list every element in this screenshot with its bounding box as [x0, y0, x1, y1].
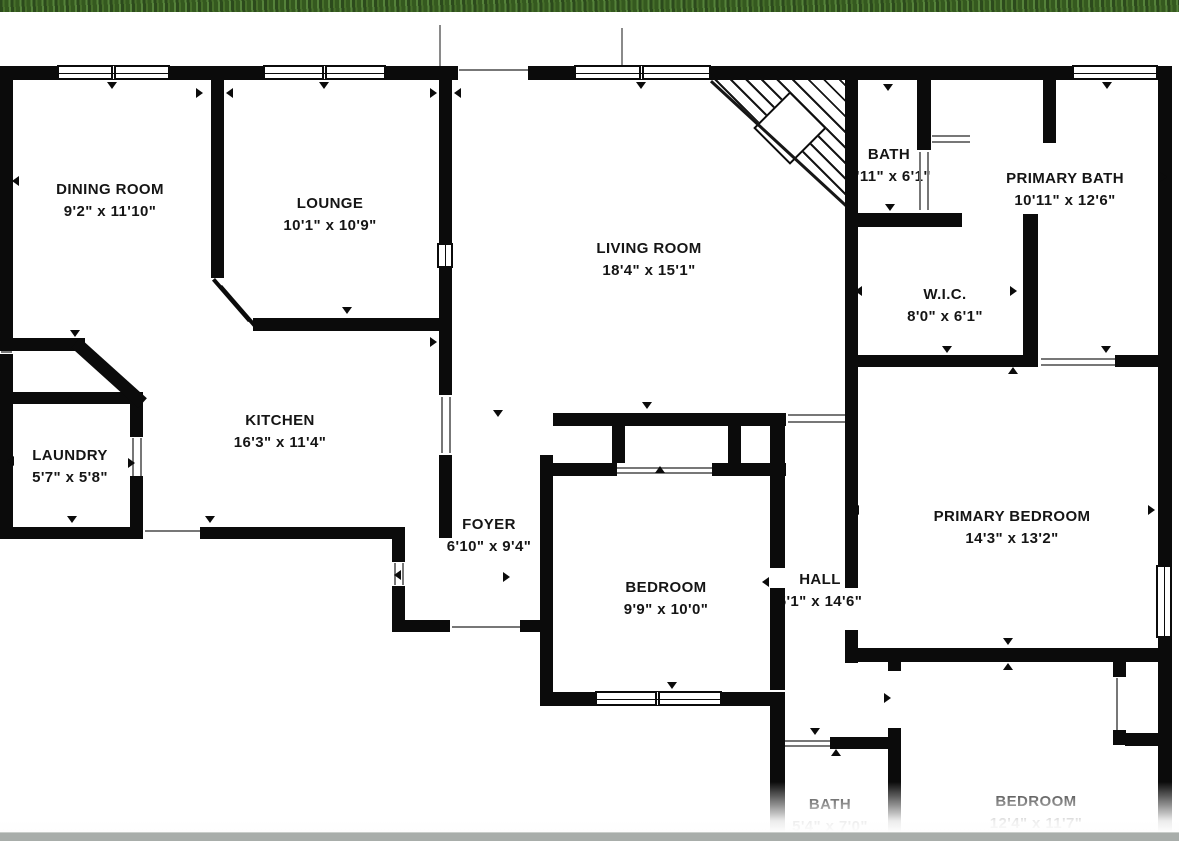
wall — [845, 648, 1172, 662]
room-dims: 5'7" x 5'8" — [32, 467, 108, 489]
room-label-primary-bedroom: PRIMARY BEDROOM 14'3" x 13'2" — [934, 506, 1091, 550]
wall — [540, 692, 595, 706]
door-opening-line — [1041, 364, 1115, 366]
wall — [0, 527, 143, 539]
grass-photo-strip — [0, 0, 1179, 12]
window-icon — [595, 691, 722, 706]
window-icon — [57, 65, 170, 80]
room-dims: 9'9" x 10'0" — [624, 599, 709, 621]
door-opening-line — [145, 530, 200, 532]
wall — [0, 66, 13, 340]
room-dims: 10'1" x 10'9" — [283, 215, 376, 237]
room-dims: 9'2" x 11'10" — [56, 201, 164, 223]
door-swing-arrow-icon — [884, 693, 891, 703]
door-opening-line — [782, 740, 830, 742]
wall — [0, 354, 13, 538]
wall — [711, 66, 1072, 80]
room-name: FOYER — [447, 514, 532, 536]
room-name: PRIMARY BEDROOM — [934, 506, 1091, 528]
door-swing-arrow-icon — [1102, 82, 1112, 89]
door-opening-line — [441, 397, 443, 453]
wall — [392, 620, 450, 632]
door-opening-line — [788, 414, 845, 416]
door-swing-arrow-icon — [885, 204, 895, 211]
room-name: LIVING ROOM — [596, 238, 701, 260]
wall — [553, 413, 786, 426]
wall — [1113, 662, 1126, 677]
door-opening-line — [132, 438, 134, 476]
wall — [770, 413, 785, 568]
room-dims: 14'3" x 13'2" — [934, 528, 1091, 550]
wall — [200, 527, 405, 539]
room-label-kitchen: KITCHEN 16'3" x 11'4" — [234, 410, 326, 454]
door-swing-arrow-icon — [883, 84, 893, 91]
door-swing-arrow-icon — [1003, 638, 1013, 645]
room-dims: 10'11" x 12'6" — [1006, 190, 1124, 212]
door-swing-arrow-icon — [942, 346, 952, 353]
door-swing-arrow-icon — [778, 693, 785, 703]
roof-guide-line — [439, 25, 441, 67]
wall — [1125, 733, 1172, 746]
room-label-primary-bath: PRIMARY BATH 10'11" x 12'6" — [1006, 168, 1124, 212]
page-bottom-fade — [0, 782, 1179, 832]
window-icon — [263, 65, 386, 80]
door-swing-arrow-icon — [319, 82, 329, 89]
door-swing-arrow-icon — [430, 337, 437, 347]
room-name: BEDROOM — [624, 577, 709, 599]
door-swing-arrow-icon — [342, 307, 352, 314]
door-opening-line — [788, 421, 845, 423]
wall — [770, 588, 785, 690]
wall — [392, 539, 405, 562]
window-icon — [1156, 565, 1172, 638]
door-swing-arrow-icon — [762, 577, 769, 587]
door-swing-arrow-icon — [1010, 286, 1017, 296]
room-name: PRIMARY BATH — [1006, 168, 1124, 190]
wall — [612, 426, 625, 463]
door-swing-arrow-icon — [493, 410, 503, 417]
wall — [1023, 214, 1038, 367]
wall — [130, 476, 143, 527]
wall — [845, 213, 962, 227]
wall — [8, 66, 57, 80]
window-icon — [574, 65, 711, 80]
wall — [1158, 66, 1172, 80]
door-opening-line — [919, 152, 921, 210]
door-opening-line — [927, 152, 929, 210]
wall — [439, 80, 452, 243]
wall — [553, 463, 617, 476]
door-opening-line — [932, 141, 970, 143]
room-label-wic: W.I.C. 8'0" x 6'1" — [907, 284, 983, 328]
door-opening-line — [1041, 358, 1115, 360]
wall — [211, 66, 224, 278]
door-swing-arrow-icon — [1101, 346, 1111, 353]
room-label-laundry: LAUNDRY 5'7" x 5'8" — [32, 445, 108, 489]
window-icon — [1072, 65, 1158, 80]
door-swing-arrow-icon — [454, 88, 461, 98]
door-opening-line — [1116, 678, 1118, 730]
door-swing-arrow-icon — [667, 682, 677, 689]
door-opening-line — [452, 626, 520, 628]
room-dims: 5'1" x 14'6" — [778, 591, 863, 613]
door-opening-line — [140, 438, 142, 476]
door-swing-arrow-icon — [70, 330, 80, 337]
room-label-living: LIVING ROOM 18'4" x 15'1" — [596, 238, 701, 282]
room-label-lounge: LOUNGE 10'1" x 10'9" — [283, 193, 376, 237]
floor-plan-canvas: DINING ROOM 9'2" x 11'10" LOUNGE 10'1" x… — [0, 0, 1179, 840]
wall — [1043, 80, 1056, 143]
door-swing-arrow-icon — [1160, 172, 1167, 182]
door-swing-arrow-icon — [205, 516, 215, 523]
door-swing-arrow-icon — [1008, 367, 1018, 374]
wall — [386, 66, 458, 80]
roof-guide-line — [621, 28, 623, 67]
door-opening-line — [1, 351, 12, 353]
door-swing-arrow-icon — [430, 88, 437, 98]
door-swing-arrow-icon — [226, 88, 233, 98]
room-name: KITCHEN — [234, 410, 326, 432]
door-swing-arrow-icon — [67, 516, 77, 523]
door-swing-arrow-icon — [831, 749, 841, 756]
room-name: DINING ROOM — [56, 179, 164, 201]
room-dims: 16'3" x 11'4" — [234, 432, 326, 454]
door-swing-arrow-icon — [394, 570, 401, 580]
wall — [528, 66, 574, 80]
door-opening-line — [402, 563, 404, 585]
wall — [888, 662, 901, 671]
room-label-bedroom: BEDROOM 9'9" x 10'0" — [624, 577, 709, 621]
door-swing-arrow-icon — [1003, 663, 1013, 670]
room-name: LAUNDRY — [32, 445, 108, 467]
room-name: LOUNGE — [283, 193, 376, 215]
door-opening-line — [459, 69, 528, 71]
door-swing-arrow-icon — [855, 286, 862, 296]
wall — [439, 455, 452, 538]
door-opening-line — [449, 397, 451, 453]
wall — [722, 692, 785, 706]
door-swing-arrow-icon — [636, 82, 646, 89]
door-swing-arrow-icon — [1148, 505, 1155, 515]
window-icon — [437, 243, 453, 268]
wall — [439, 268, 452, 395]
room-name: W.I.C. — [907, 284, 983, 306]
door-swing-arrow-icon — [128, 458, 135, 468]
wall — [845, 355, 1038, 367]
room-label-dining: DINING ROOM 9'2" x 11'10" — [56, 179, 164, 223]
door-swing-arrow-icon — [196, 88, 203, 98]
wall — [253, 318, 440, 331]
door-opening-line — [782, 745, 830, 747]
room-label-foyer: FOYER 6'10" x 9'4" — [447, 514, 532, 558]
door-swing-arrow-icon — [503, 572, 510, 582]
wall — [1158, 80, 1172, 565]
wall — [1115, 355, 1172, 367]
door-swing-arrow-icon — [7, 456, 14, 466]
room-dims: 8'0" x 6'1" — [907, 306, 983, 328]
door-swing-arrow-icon — [107, 82, 117, 89]
door-swing-arrow-icon — [65, 396, 75, 403]
door-swing-arrow-icon — [852, 505, 859, 515]
wall — [728, 426, 741, 463]
wall — [830, 737, 890, 749]
wall — [917, 80, 931, 150]
room-dims: 6'10" x 9'4" — [447, 536, 532, 558]
door-swing-arrow-icon — [810, 728, 820, 735]
door-swing-arrow-icon — [655, 466, 665, 473]
wall — [540, 455, 553, 706]
door-opening-line — [932, 135, 970, 137]
door-swing-arrow-icon — [12, 176, 19, 186]
room-dims: 18'4" x 15'1" — [596, 260, 701, 282]
door-swing-arrow-icon — [642, 402, 652, 409]
